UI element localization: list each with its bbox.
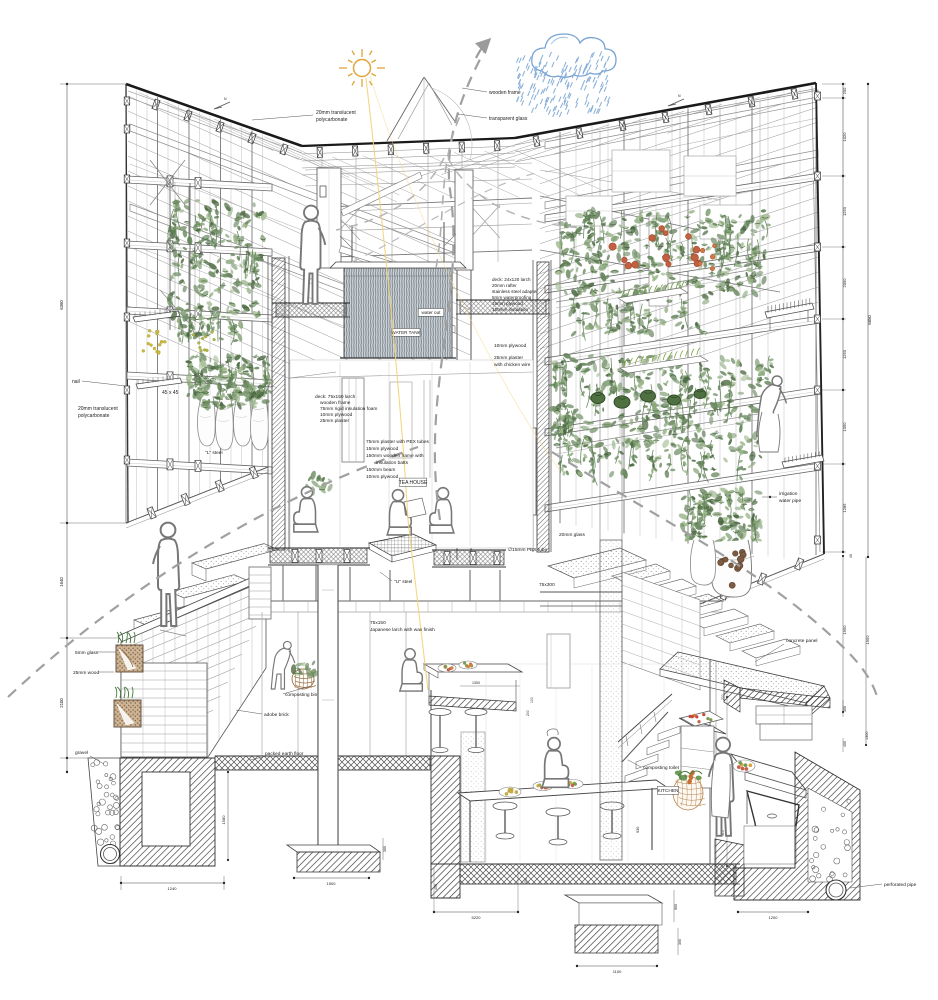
- svg-text:deck: 24x120 larch: deck: 24x120 larch: [492, 277, 531, 282]
- svg-text:Japanese larch with wax finish: Japanese larch with wax finish: [370, 627, 435, 633]
- svg-text:"U" steel: "U" steel: [394, 579, 412, 585]
- svg-text:5mm waterproofing: 5mm waterproofing: [492, 295, 532, 300]
- svg-text:75mm rigid insulation foam: 75mm rigid insulation foam: [320, 406, 377, 412]
- svg-text:300: 300: [678, 939, 682, 945]
- svg-text:930: 930: [636, 827, 640, 833]
- svg-text:5220: 5220: [472, 915, 482, 920]
- svg-text:200: 200: [526, 710, 530, 716]
- svg-text:10mm plywood: 10mm plywood: [494, 343, 527, 349]
- svg-text:75x300: 75x300: [539, 582, 555, 588]
- svg-text:900: 900: [674, 904, 678, 910]
- svg-text:150mm beam: 150mm beam: [366, 467, 395, 473]
- svg-text:15mm plywood: 15mm plywood: [492, 301, 523, 306]
- svg-text:polycarbonate: polycarbonate: [316, 117, 348, 123]
- svg-text:100: 100: [530, 697, 534, 703]
- svg-text:1250: 1250: [842, 349, 847, 359]
- svg-text:with chicken wire: with chicken wire: [494, 362, 531, 368]
- svg-text:1300: 1300: [865, 732, 869, 740]
- svg-text:TEA HOUSE: TEA HOUSE: [399, 480, 428, 486]
- svg-text:1050: 1050: [842, 422, 847, 432]
- svg-text:75x150: 75x150: [370, 620, 386, 626]
- svg-text:20mm translucent: 20mm translucent: [316, 110, 356, 116]
- svg-text:6850: 6850: [867, 315, 872, 325]
- svg-text:gravel: gravel: [75, 750, 88, 756]
- svg-text:1100: 1100: [613, 969, 622, 974]
- svg-text:concrete panel: concrete panel: [786, 638, 817, 644]
- svg-text:1640: 1640: [59, 577, 64, 587]
- svg-text:polycarbonate: polycarbonate: [78, 413, 110, 419]
- svg-text:1020: 1020: [842, 132, 847, 142]
- svg-text:1580: 1580: [221, 815, 226, 825]
- svg-text:150mm insulation: 150mm insulation: [492, 307, 528, 312]
- svg-text:20mm translucent: 20mm translucent: [78, 406, 118, 412]
- svg-text:300: 300: [843, 706, 847, 712]
- svg-text:∅15mm PEX tube: ∅15mm PEX tube: [508, 547, 547, 553]
- svg-text:packed earth floor: packed earth floor: [265, 751, 304, 757]
- svg-text:25mm plaster: 25mm plaster: [320, 418, 349, 424]
- svg-text:2100: 2100: [59, 698, 64, 708]
- svg-text:1500: 1500: [327, 881, 337, 886]
- svg-text:"L" steel: "L" steel: [205, 450, 223, 456]
- svg-text:10mm plywood: 10mm plywood: [366, 474, 399, 480]
- svg-text:1285: 1285: [842, 503, 847, 513]
- svg-text:wooden frame: wooden frame: [489, 90, 521, 96]
- svg-text:KITCHEN: KITCHEN: [657, 788, 679, 794]
- svg-text:nail: nail: [72, 379, 80, 385]
- svg-text:25mm wood: 25mm wood: [73, 670, 99, 676]
- svg-text:25mm plaster: 25mm plaster: [494, 355, 523, 361]
- svg-text:perforated pipe: perforated pipe: [884, 882, 917, 888]
- svg-text:1950: 1950: [842, 625, 847, 635]
- svg-text:wooden frame: wooden frame: [320, 400, 351, 406]
- svg-text:2050: 2050: [842, 278, 847, 288]
- svg-text:1240: 1240: [168, 886, 178, 891]
- svg-text:6360: 6360: [59, 300, 64, 310]
- svg-text:water pipe: water pipe: [779, 498, 801, 504]
- svg-text:200: 200: [842, 87, 847, 94]
- svg-text:insulation batts: insulation batts: [376, 460, 409, 466]
- svg-text:transparent glass: transparent glass: [489, 116, 528, 122]
- svg-text:10mm plywood: 10mm plywood: [320, 412, 353, 418]
- svg-text:75mm plaster with PEX tubes: 75mm plaster with PEX tubes: [366, 439, 430, 445]
- svg-text:300: 300: [383, 846, 387, 852]
- svg-text:composting bin: composting bin: [285, 692, 318, 698]
- svg-text:45 x 45: 45 x 45: [162, 390, 179, 396]
- svg-text:20mm glass: 20mm glass: [559, 532, 585, 538]
- svg-text:150mm wooden frame with: 150mm wooden frame with: [366, 453, 424, 459]
- svg-text:water out: water out: [422, 310, 442, 315]
- svg-text:stainless steel adapter: stainless steel adapter: [492, 289, 538, 294]
- svg-text:irrigation: irrigation: [779, 491, 798, 497]
- svg-text:1250: 1250: [842, 206, 847, 216]
- svg-text:composting toilet: composting toilet: [643, 765, 680, 771]
- svg-text:40: 40: [849, 554, 853, 558]
- svg-text:WATER TANK: WATER TANK: [391, 330, 421, 335]
- svg-text:15mm plywood: 15mm plywood: [366, 446, 399, 452]
- svg-text:400: 400: [843, 741, 847, 747]
- svg-text:20mm rafter: 20mm rafter: [492, 283, 517, 288]
- svg-text:5mm glass: 5mm glass: [75, 650, 99, 656]
- svg-text:1200: 1200: [769, 915, 779, 920]
- svg-text:1950: 1950: [865, 635, 870, 645]
- svg-text:adobe brick: adobe brick: [264, 712, 289, 718]
- svg-text:1300: 1300: [472, 681, 480, 685]
- svg-text:deck: 75x150 larch: deck: 75x150 larch: [315, 394, 356, 400]
